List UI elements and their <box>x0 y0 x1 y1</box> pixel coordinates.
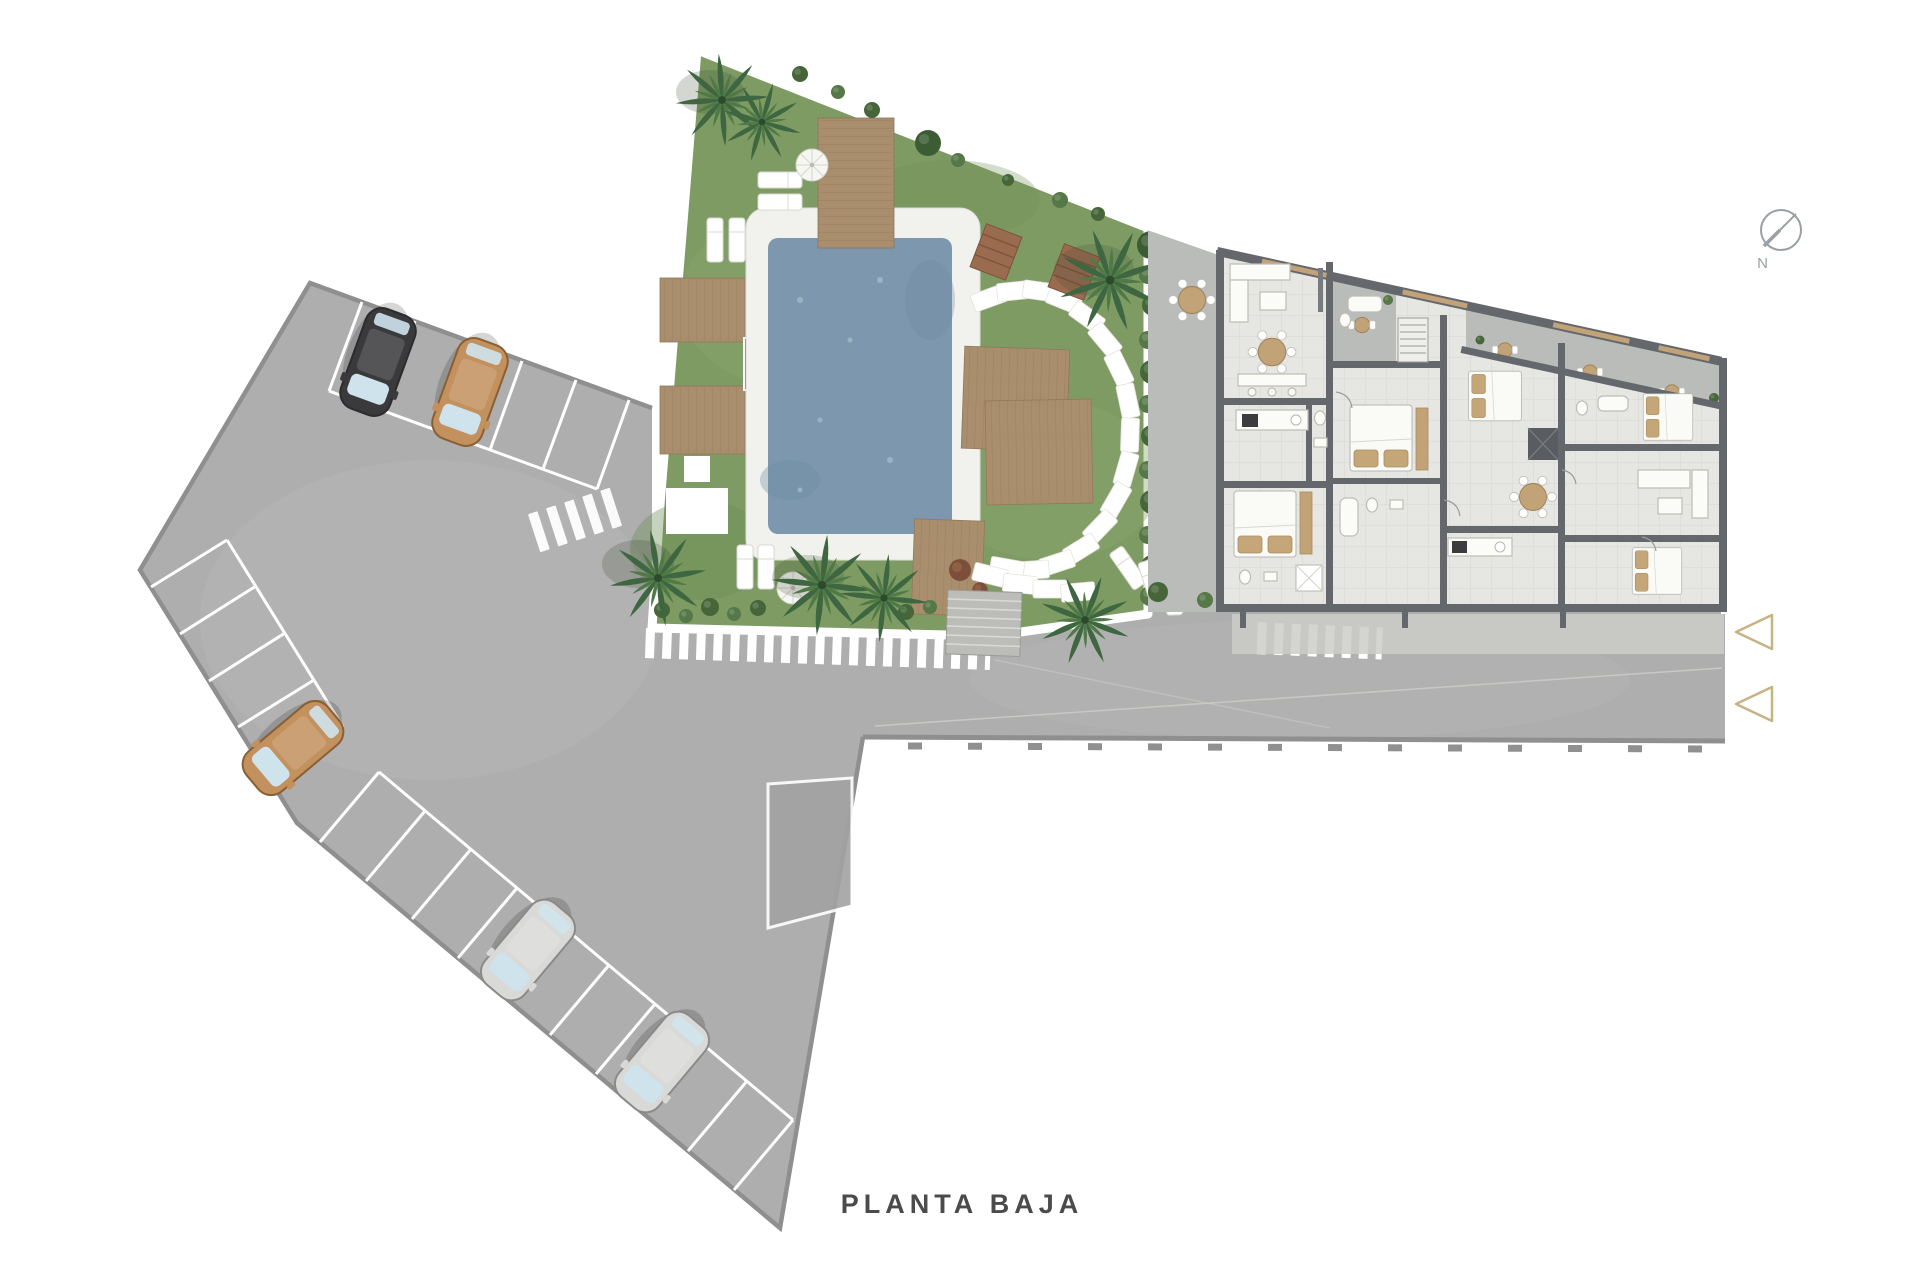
stool <box>1248 388 1256 396</box>
toilet <box>1367 498 1378 512</box>
patio-shrub <box>1148 582 1168 602</box>
compass-label: N <box>1757 255 1769 272</box>
road-tick-marks <box>908 746 1718 749</box>
bed <box>1350 405 1412 471</box>
patio <box>1148 226 1222 612</box>
bed <box>1469 371 1522 421</box>
terrace-plant <box>1476 336 1485 345</box>
entrance-arrow-icon <box>1736 687 1772 721</box>
wood-deck <box>660 386 760 454</box>
sink <box>1291 415 1301 425</box>
bathtub <box>1348 296 1382 312</box>
sink <box>1495 542 1505 552</box>
sun-lounger <box>758 194 802 210</box>
tv-unit <box>1318 268 1323 312</box>
site-plan-page: N PLANTA BAJA <box>0 0 1920 1280</box>
patio-shrub <box>1197 592 1213 608</box>
washbasin <box>1264 572 1277 581</box>
stool <box>1288 388 1296 396</box>
sofa <box>1692 470 1708 518</box>
toilet <box>1340 313 1351 327</box>
sun-lounger <box>758 172 802 188</box>
k-island <box>1238 374 1306 386</box>
stool <box>1268 388 1276 396</box>
coffee-table <box>1658 498 1682 514</box>
wood-deck <box>985 399 1093 505</box>
bed <box>1632 548 1682 595</box>
sun-lounger <box>737 545 753 589</box>
page-title: PLANTA BAJA <box>841 1189 1084 1219</box>
terrace-plant <box>1383 295 1393 305</box>
coffee-table <box>1260 292 1286 310</box>
toilet <box>1240 570 1251 584</box>
sofa <box>1230 264 1290 280</box>
sun-lounger <box>729 218 745 262</box>
building <box>1216 247 1727 654</box>
pool-bridge <box>818 118 894 248</box>
wardrobe <box>1300 492 1312 554</box>
compass: N <box>1757 210 1801 272</box>
sun-lounger <box>758 545 774 589</box>
concrete-pad <box>684 456 710 482</box>
entrance-arrow-icon <box>1736 615 1772 649</box>
toilet <box>1315 411 1326 425</box>
entrance-steps <box>946 590 1022 657</box>
wardrobe <box>1416 408 1428 470</box>
red-shrub <box>949 559 971 581</box>
sofa <box>1230 280 1248 322</box>
bed <box>1234 491 1296 557</box>
bathtub <box>1340 498 1358 536</box>
bed <box>1643 394 1693 441</box>
wood-deck <box>660 278 760 342</box>
cooktop <box>1242 414 1258 427</box>
sun-lounger <box>707 218 723 262</box>
parasol-icon <box>796 149 828 181</box>
washbasin <box>1390 500 1403 509</box>
entrance-arrows <box>1736 615 1772 721</box>
marked-bay <box>768 778 852 928</box>
porch <box>1232 614 1724 654</box>
cooktop <box>1452 541 1467 553</box>
sofa <box>1638 470 1690 488</box>
toilet <box>1577 401 1588 415</box>
site-plan: N PLANTA BAJA <box>0 0 1920 1280</box>
concrete-pad <box>666 488 728 534</box>
bathtub <box>1598 396 1628 411</box>
washbasin <box>1314 438 1327 447</box>
